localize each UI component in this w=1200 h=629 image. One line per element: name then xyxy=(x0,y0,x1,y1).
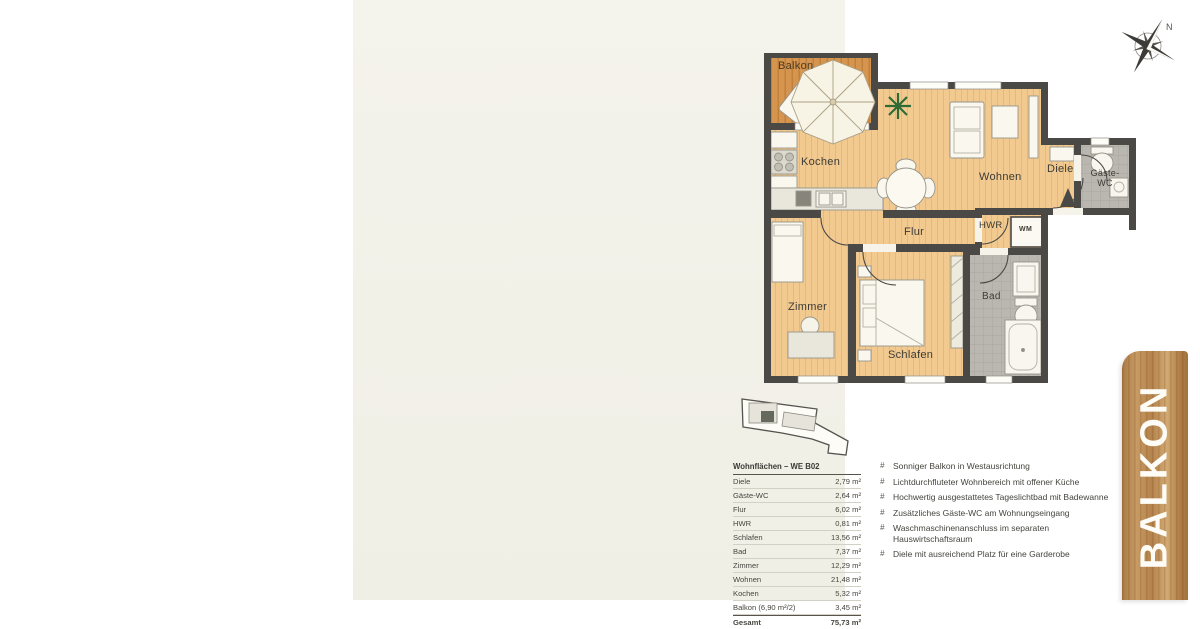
balkon-banner: BALKON xyxy=(1122,351,1188,600)
room-label-zimmer: Zimmer xyxy=(788,301,827,313)
table-row-value: 0,81 m² xyxy=(835,519,861,528)
room-label-kochen: Kochen xyxy=(801,156,840,168)
bullet-icon: # xyxy=(880,492,893,502)
table-row-value: 2,79 m² xyxy=(835,477,861,486)
bullet-icon: # xyxy=(880,508,893,518)
table-row-value: 2,64 m² xyxy=(835,491,861,500)
table-row-value: 6,02 m² xyxy=(835,505,861,514)
compass-north-label: N xyxy=(1166,22,1173,32)
balkon-banner-text: BALKON xyxy=(1134,382,1177,569)
table-row: Gäste-WC 2,64 m² xyxy=(733,489,861,503)
bath-sink xyxy=(1013,262,1039,296)
room-label-balkon: Balkon xyxy=(778,60,813,72)
area-table-rows: Diele 2,79 m² Gäste-WC 2,64 m² Flur 6,02… xyxy=(733,475,861,615)
room-label-wohnen: Wohnen xyxy=(979,171,1022,183)
table-row: Schlafen 13,56 m² xyxy=(733,531,861,545)
table-row: HWR 0,81 m² xyxy=(733,517,861,531)
table-row-label: Diele xyxy=(733,477,750,486)
table-row-value: 13,56 m² xyxy=(831,533,861,542)
list-item: # Diele mit ausreichend Platz für eine G… xyxy=(880,549,1130,559)
site-plan xyxy=(718,390,858,462)
site-unit-highlight xyxy=(761,411,774,422)
room-label-diele: Diele xyxy=(1047,163,1074,175)
bullet-icon: # xyxy=(880,461,893,471)
nightstand xyxy=(858,350,871,361)
bullet-icon: # xyxy=(880,523,893,544)
desk xyxy=(788,332,834,358)
room-label-gaeste-wc: Gäste-WC xyxy=(1083,168,1127,189)
bathtub xyxy=(1005,320,1041,374)
table-row: Zimmer 12,29 m² xyxy=(733,559,861,573)
table-row-label: Kochen xyxy=(733,589,759,598)
table-row: Wohnen 21,48 m² xyxy=(733,573,861,587)
room-label-bad: Bad xyxy=(982,291,1001,302)
brochure-page: N xyxy=(353,0,845,600)
table-row-value: 3,45 m² xyxy=(835,603,861,612)
table-row-label: Gäste-WC xyxy=(733,491,768,500)
table-row: Flur 6,02 m² xyxy=(733,503,861,517)
list-item: # Sonniger Balkon in Westausrichtung xyxy=(880,461,1130,471)
double-bed xyxy=(860,280,924,346)
area-table-title: Wohnflächen – WE B02 xyxy=(733,460,861,475)
parasol xyxy=(791,60,875,144)
room-label-wm: WM xyxy=(1019,226,1032,233)
list-item-text: Waschmaschinenanschluss im separaten Hau… xyxy=(893,523,1049,544)
area-table: Wohnflächen – WE B02 Diele 2,79 m² Gäste… xyxy=(733,460,861,629)
table-row-label: HWR xyxy=(733,519,751,528)
list-item-text: Sonniger Balkon in Westausrichtung xyxy=(893,461,1030,471)
bullet-icon: # xyxy=(880,477,893,487)
sofa xyxy=(950,102,984,158)
list-item-text: Hochwertig ausgestattetes Tageslichtbad … xyxy=(893,492,1108,502)
list-item-text: Diele mit ausreichend Platz für eine Gar… xyxy=(893,549,1070,559)
list-item: # Waschmaschinenanschluss im separaten H… xyxy=(880,523,1130,544)
table-row-label: Bad xyxy=(733,547,747,556)
table-row-label: Flur xyxy=(733,505,746,514)
hall-closet xyxy=(1050,147,1074,161)
table-row-label: Schlafen xyxy=(733,533,763,542)
room-label-hwr: HWR xyxy=(979,220,1003,231)
list-item-text: Lichtdurchfluteter Wohnbereich mit offen… xyxy=(893,477,1079,487)
table-row-value: 21,48 m² xyxy=(831,575,861,584)
table-row-label: Balkon (6,90 m²/2) xyxy=(733,603,795,612)
table-row: Balkon (6,90 m²/2) 3,45 m² xyxy=(733,601,861,615)
table-row-value: 7,37 m² xyxy=(835,547,861,556)
list-item: # Hochwertig ausgestattetes Tageslichtba… xyxy=(880,492,1130,502)
table-row: Kochen 5,32 m² xyxy=(733,587,861,601)
brochure-floorplan-page: { "page": {"background": "#f3f2ea"}, "co… xyxy=(0,0,1200,600)
floor-plan: Balkon Kochen Wohnen Diele Gäste-WC HWR … xyxy=(758,20,1148,390)
table-total-row: Gesamt 75,73 m² xyxy=(733,615,861,629)
table-row-label: Wohnen xyxy=(733,575,761,584)
bullet-icon: # xyxy=(880,549,893,559)
floor-plan-drawing xyxy=(758,20,1148,390)
room-label-flur: Flur xyxy=(904,226,924,238)
list-item: # Zusätzliches Gäste-WC am Wohnungseinga… xyxy=(880,508,1130,518)
list-item: # Lichtdurchfluteter Wohnbereich mit off… xyxy=(880,477,1130,487)
table-total-label: Gesamt xyxy=(733,618,761,627)
coffee-table xyxy=(992,106,1018,138)
table-row-value: 12,29 m² xyxy=(831,561,861,570)
list-item-text: Zusätzliches Gäste-WC am Wohnungseingang xyxy=(893,508,1070,518)
sideboard xyxy=(1029,96,1038,158)
table-row-value: 5,32 m² xyxy=(835,589,861,598)
single-bed xyxy=(772,222,803,282)
table-row: Bad 7,37 m² xyxy=(733,545,861,559)
table-row: Diele 2,79 m² xyxy=(733,475,861,489)
feature-list: # Sonniger Balkon in Westausrichtung # L… xyxy=(880,461,1130,565)
room-label-schlafen: Schlafen xyxy=(888,349,933,361)
table-row-label: Zimmer xyxy=(733,561,759,570)
table-total-value: 75,73 m² xyxy=(831,618,861,627)
wardrobe xyxy=(951,256,963,348)
